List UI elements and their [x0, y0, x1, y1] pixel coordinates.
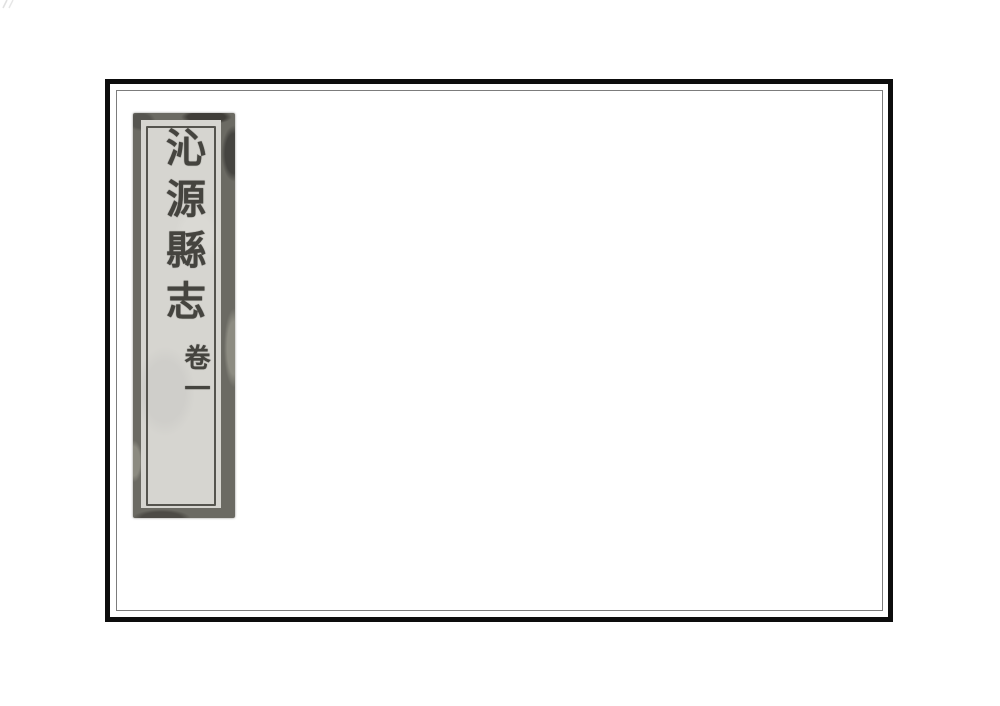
scan-artifact-mark — [1, 0, 19, 9]
book-title-vertical-text: 沁源縣志 — [162, 127, 202, 331]
volume-number-text: 卷一 — [182, 344, 208, 406]
book-title-label: 沁源縣志 卷一 — [133, 113, 235, 518]
scanned-book-cover-page: 沁源縣志 卷一 — [0, 0, 1000, 706]
